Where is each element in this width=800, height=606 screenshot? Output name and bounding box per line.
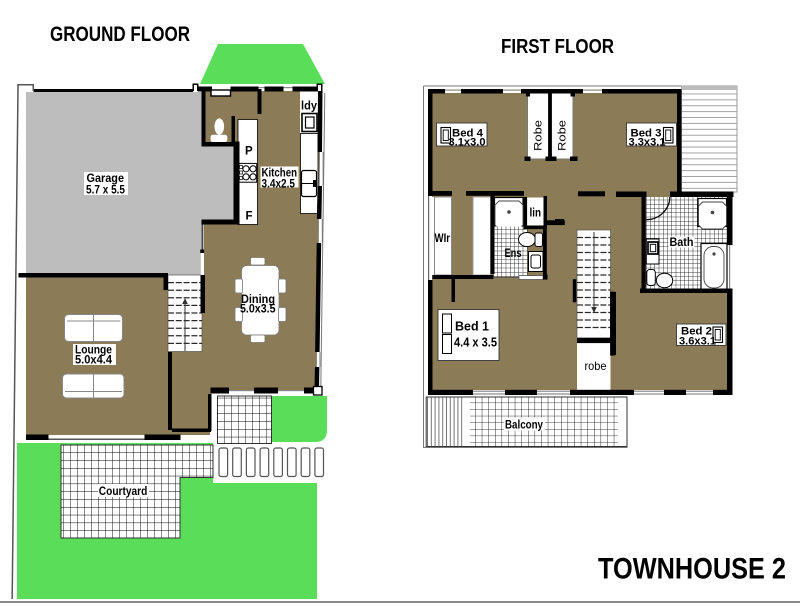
svg-text:3.1x3.0: 3.1x3.0 bbox=[449, 137, 486, 149]
svg-text:3.3x3.1: 3.3x3.1 bbox=[629, 137, 666, 149]
svg-text:5.0x4.4: 5.0x4.4 bbox=[75, 355, 113, 367]
svg-text:WIr: WIr bbox=[435, 233, 451, 245]
svg-text:Bath: Bath bbox=[670, 237, 694, 249]
svg-text:ldy: ldy bbox=[301, 101, 318, 113]
svg-text:TOWNHOUSE 2: TOWNHOUSE 2 bbox=[598, 553, 786, 586]
svg-text:4.4 x 3.5: 4.4 x 3.5 bbox=[454, 336, 497, 350]
svg-text:robe: robe bbox=[585, 359, 607, 373]
svg-text:5.7 x 5.5: 5.7 x 5.5 bbox=[86, 185, 126, 197]
svg-text:GROUND FLOOR: GROUND FLOOR bbox=[50, 23, 190, 46]
svg-text:3.4x2.5: 3.4x2.5 bbox=[262, 179, 296, 191]
svg-text:lin: lin bbox=[530, 208, 542, 220]
svg-text:3.6x3.1: 3.6x3.1 bbox=[679, 336, 716, 348]
svg-text:F: F bbox=[246, 211, 253, 223]
svg-text:Robe: Robe bbox=[533, 120, 545, 151]
svg-text:Garage: Garage bbox=[87, 173, 125, 185]
svg-text:FIRST FLOOR: FIRST FLOOR bbox=[501, 36, 614, 58]
svg-text:5.0x3.5: 5.0x3.5 bbox=[240, 304, 276, 316]
svg-text:P: P bbox=[245, 146, 253, 158]
svg-text:Robe: Robe bbox=[557, 120, 569, 151]
svg-text:Bed 1: Bed 1 bbox=[455, 320, 489, 334]
svg-text:Courtyard: Courtyard bbox=[99, 486, 148, 498]
svg-text:Balcony: Balcony bbox=[505, 420, 544, 432]
svg-text:Ens: Ens bbox=[505, 248, 522, 260]
